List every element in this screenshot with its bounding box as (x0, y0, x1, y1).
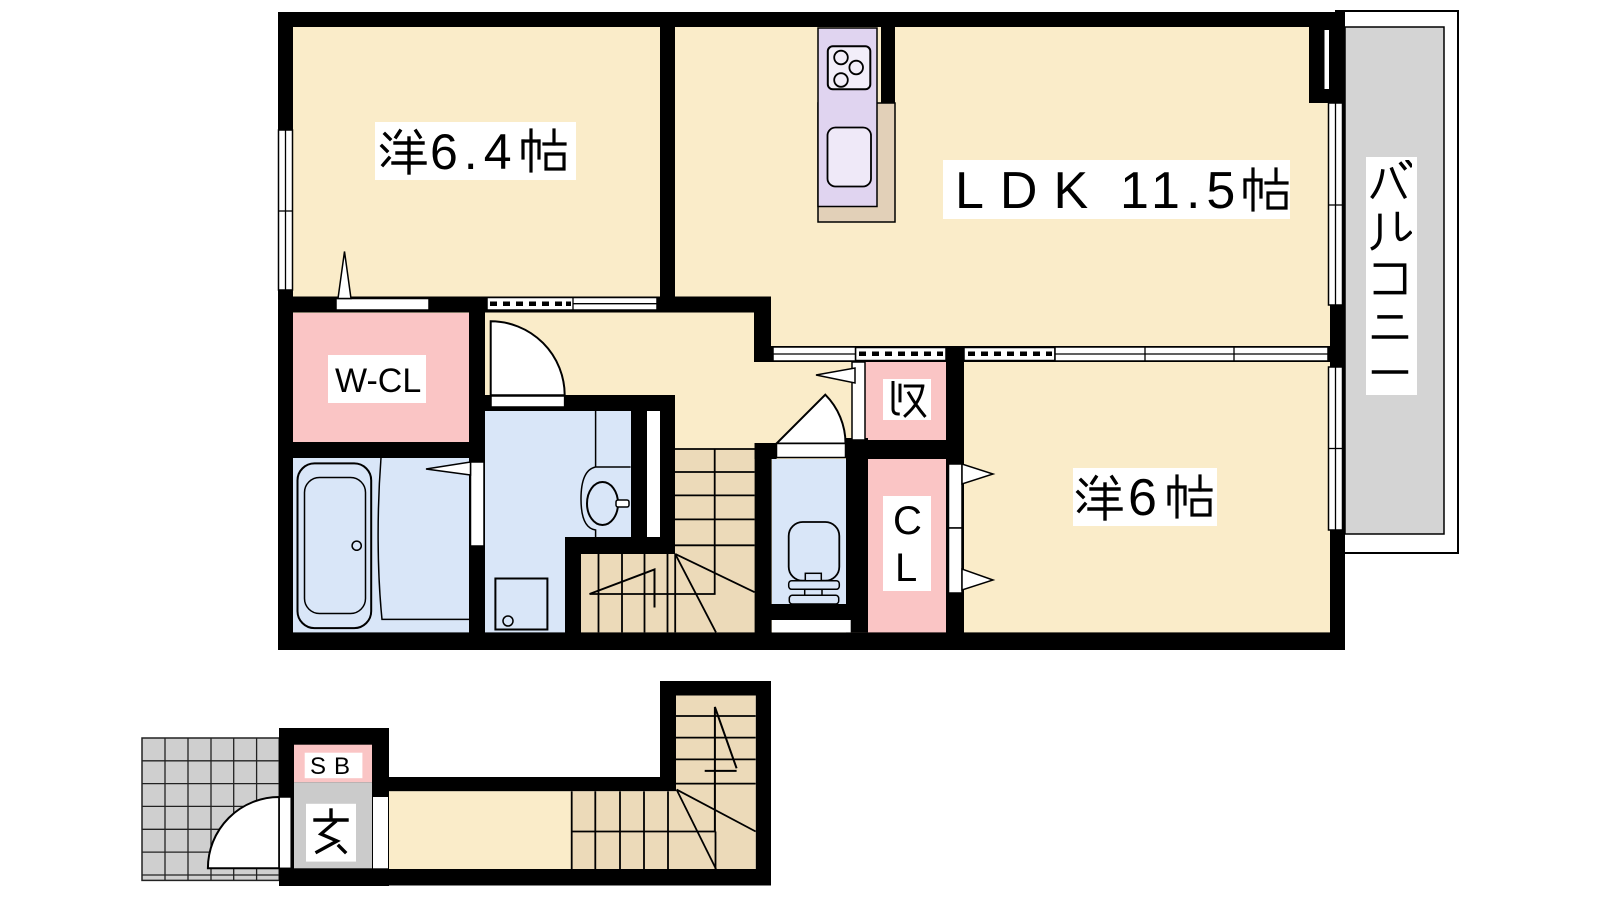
svg-text:11.5: 11.5 (1120, 162, 1241, 220)
svg-text:W-CL: W-CL (335, 362, 421, 400)
svg-text:L: L (895, 546, 917, 590)
svg-text:LDK: LDK (955, 162, 1104, 220)
svg-text:6.4: 6.4 (430, 124, 518, 180)
svg-text:6: 6 (1128, 469, 1157, 527)
svg-text:SB: SB (310, 753, 358, 780)
svg-text:C: C (893, 499, 922, 543)
